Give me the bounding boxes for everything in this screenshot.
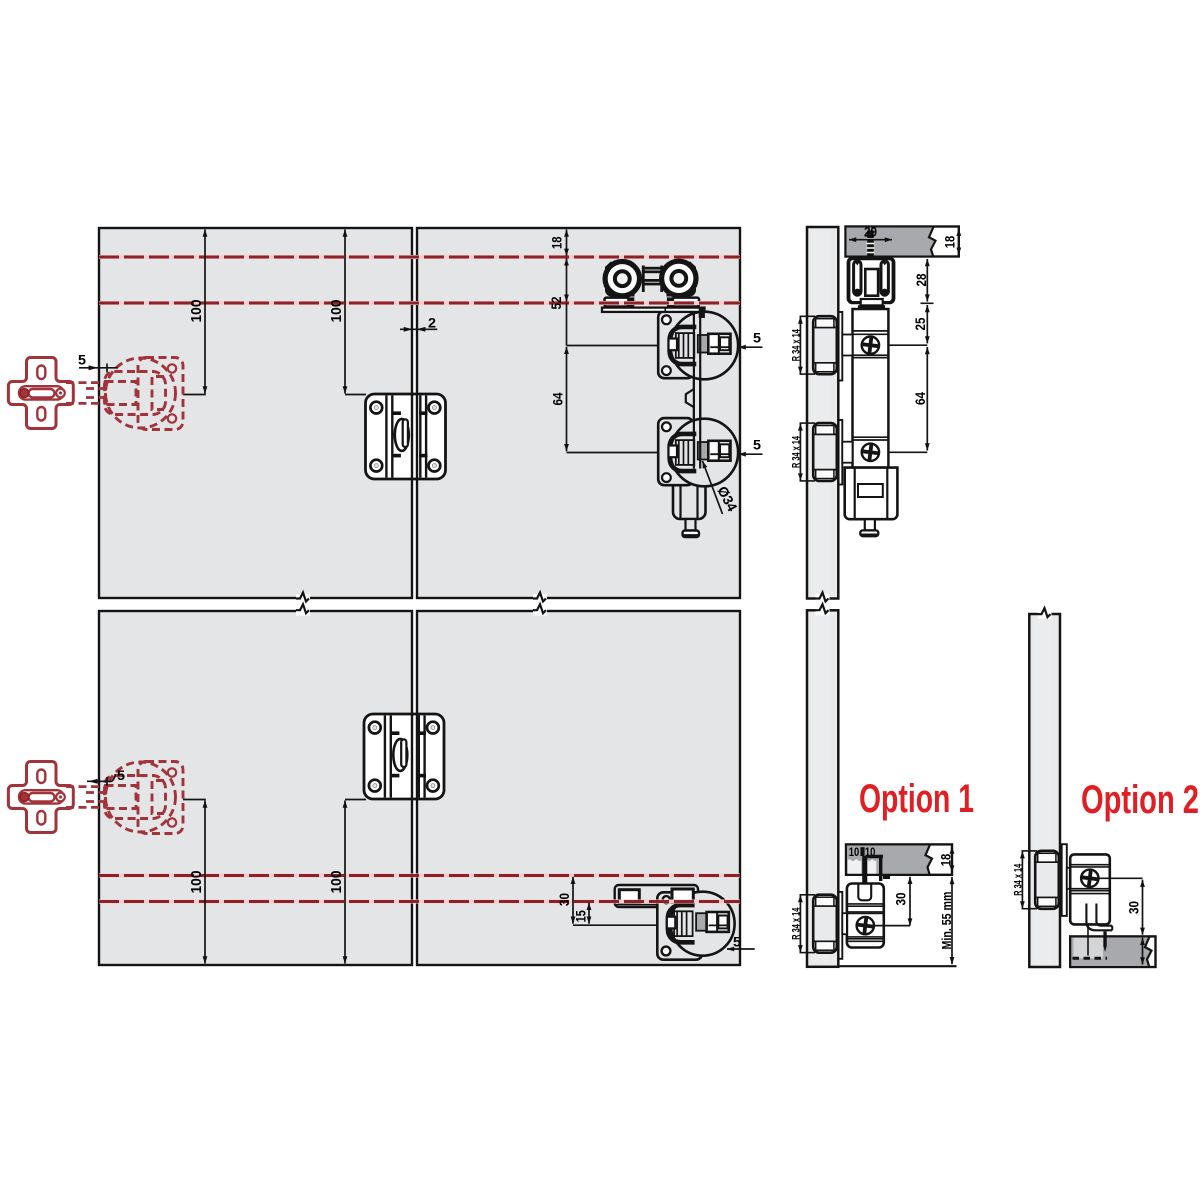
svg-text:18: 18: [549, 236, 565, 249]
svg-text:100: 100: [328, 871, 345, 894]
svg-text:18: 18: [942, 236, 958, 249]
svg-text:64: 64: [912, 392, 928, 405]
svg-text:30: 30: [556, 893, 572, 906]
svg-text:100: 100: [188, 300, 205, 323]
svg-text:5: 5: [753, 436, 761, 452]
svg-text:Option 2: Option 2: [1081, 778, 1199, 822]
svg-text:5: 5: [753, 329, 761, 345]
svg-text:5: 5: [78, 352, 86, 368]
svg-text:5: 5: [117, 767, 125, 783]
svg-text:52: 52: [548, 296, 564, 309]
svg-text:Option 1: Option 1: [859, 777, 974, 821]
svg-text:2: 2: [428, 315, 436, 331]
svg-text:25: 25: [912, 317, 928, 330]
svg-text:30: 30: [1125, 901, 1141, 914]
svg-text:100: 100: [328, 300, 345, 323]
svg-text:Min. 55 mm: Min. 55 mm: [939, 892, 954, 950]
svg-text:30: 30: [893, 892, 909, 905]
svg-text:15: 15: [573, 910, 589, 922]
svg-text:100: 100: [188, 871, 205, 894]
svg-text:10: 10: [849, 847, 860, 859]
svg-text:5: 5: [733, 934, 741, 950]
svg-text:29: 29: [864, 224, 877, 240]
svg-text:64: 64: [550, 392, 566, 405]
svg-text:18: 18: [938, 854, 954, 867]
svg-text:28: 28: [913, 273, 929, 286]
